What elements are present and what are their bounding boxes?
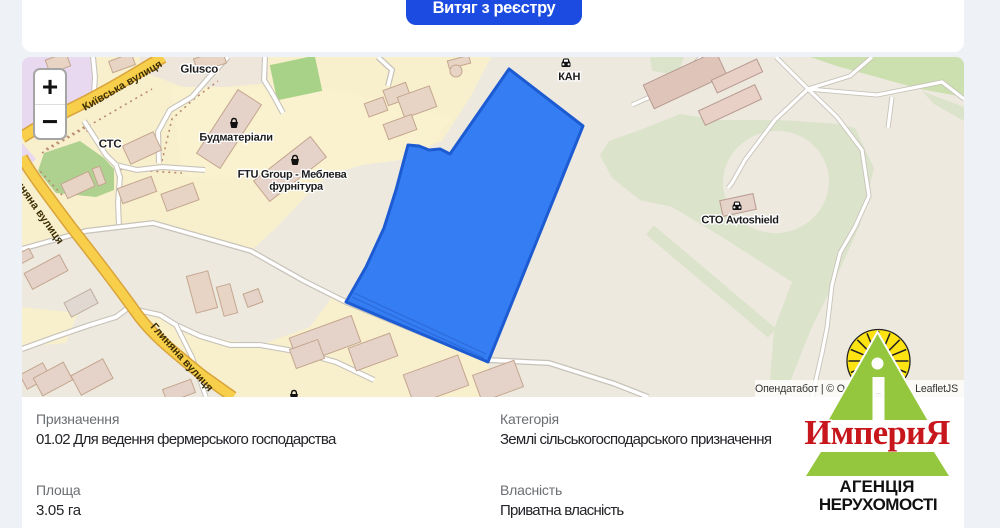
svg-text:НЕРУХОМОСТІ: НЕРУХОМОСТІ bbox=[819, 495, 937, 514]
svg-text:АГЕНЦІЯ: АГЕНЦІЯ bbox=[840, 477, 915, 496]
svg-text:фурнітура: фурнітура bbox=[269, 181, 324, 193]
svg-text:КАН: КАН bbox=[558, 71, 580, 83]
svg-text:FTU Group - Меблева: FTU Group - Меблева bbox=[238, 169, 348, 181]
svg-text:СТО Avtoshield: СТО Avtoshield bbox=[701, 214, 778, 226]
svg-text:Glusco: Glusco bbox=[180, 64, 218, 76]
svg-text:СТС: СТС bbox=[99, 138, 122, 150]
svg-text:Будматеріали: Будматеріали bbox=[199, 132, 272, 144]
svg-text:ИмпериЯ: ИмпериЯ bbox=[804, 414, 950, 452]
